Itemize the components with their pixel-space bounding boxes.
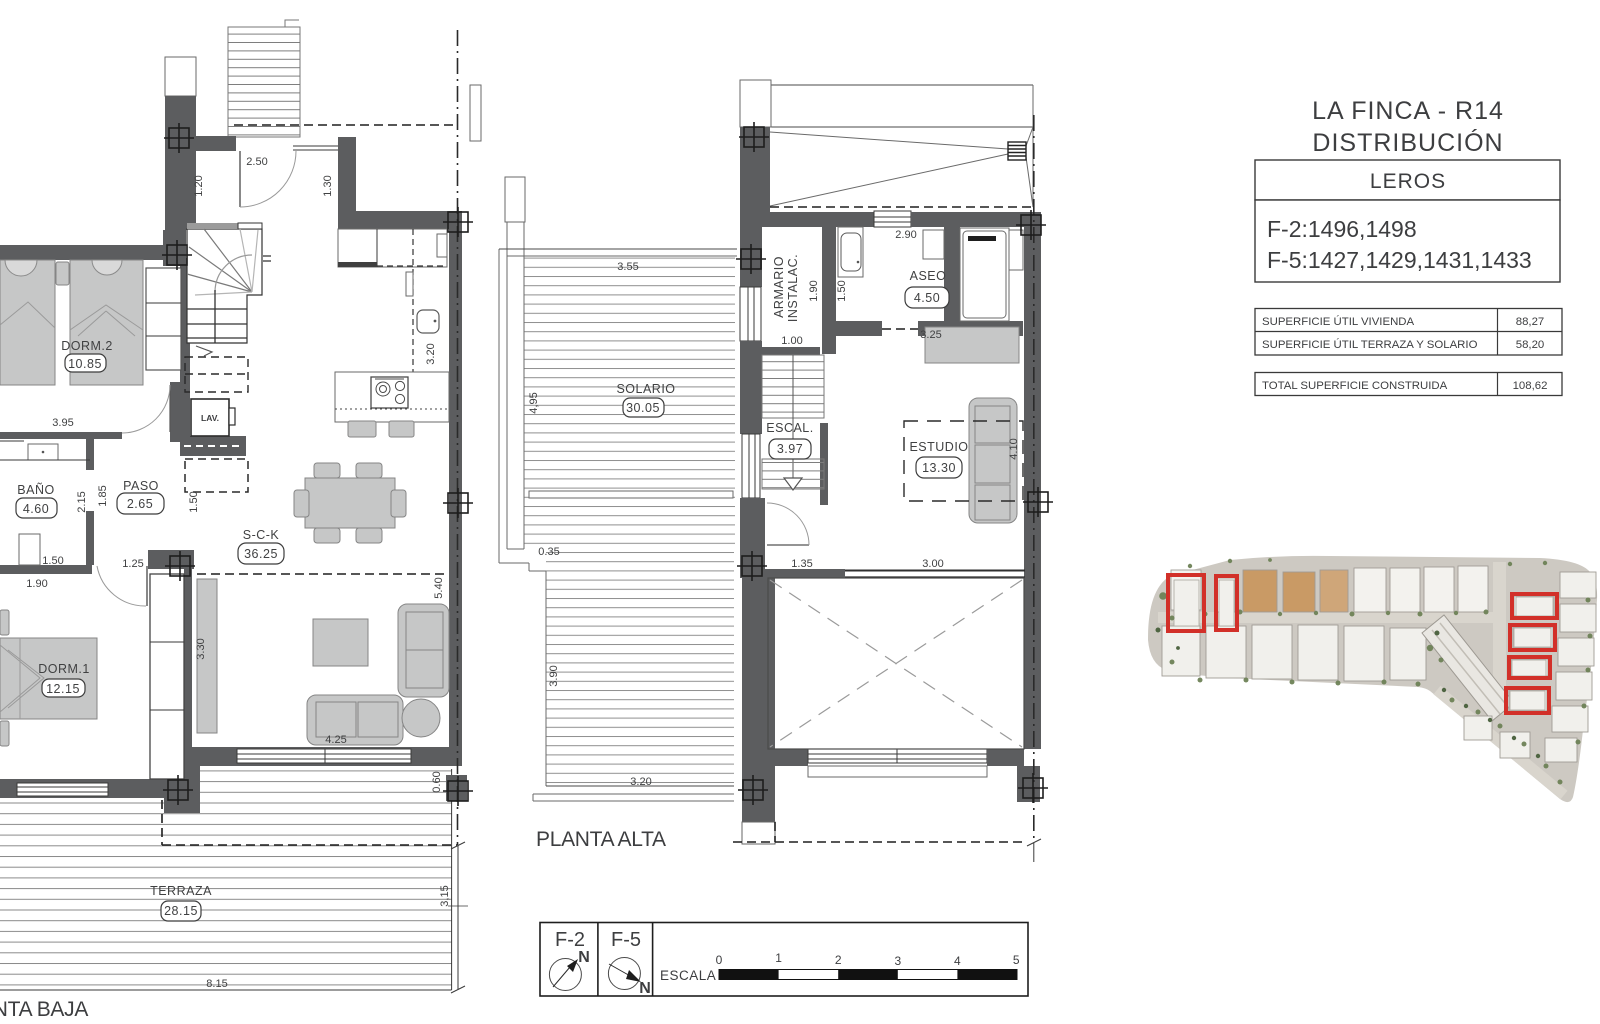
svg-text:4.10: 4.10: [1008, 438, 1020, 459]
svg-text:INSTALAC.: INSTALAC.: [786, 254, 800, 322]
svg-text:1.50: 1.50: [188, 491, 200, 512]
svg-text:F-5: F-5: [611, 929, 641, 951]
svg-text:2: 2: [835, 953, 842, 967]
svg-text:30.05: 30.05: [626, 401, 660, 415]
svg-text:N: N: [639, 980, 651, 997]
svg-text:DORM.2: DORM.2: [61, 339, 113, 353]
svg-text:PASO: PASO: [123, 479, 159, 493]
svg-text:1.00: 1.00: [781, 335, 802, 347]
svg-text:2.90: 2.90: [895, 229, 916, 241]
svg-text:3,15: 3,15: [439, 885, 451, 906]
svg-text:13.30: 13.30: [922, 461, 956, 475]
svg-text:0.60: 0.60: [431, 771, 443, 792]
svg-text:1.90: 1.90: [26, 578, 47, 590]
svg-text:SUPERFICIE ÚTIL VIVIENDA: SUPERFICIE ÚTIL VIVIENDA: [1262, 315, 1415, 328]
svg-text:PLANTA ALTA: PLANTA ALTA: [536, 828, 666, 851]
svg-text:S-C-K: S-C-K: [243, 528, 280, 542]
svg-text:ESCALA :: ESCALA :: [660, 968, 724, 983]
svg-text:4.60: 4.60: [23, 502, 49, 516]
svg-text:2.15: 2.15: [76, 491, 88, 512]
svg-text:F-5:1427,1429,1431,1433: F-5:1427,1429,1431,1433: [1267, 247, 1532, 273]
svg-text:DISTRIBUCIÓN: DISTRIBUCIÓN: [1312, 128, 1503, 157]
svg-text:3: 3: [894, 954, 901, 968]
svg-text:ESCAL.: ESCAL.: [766, 421, 813, 435]
svg-text:ESTUDIO: ESTUDIO: [909, 440, 968, 454]
svg-text:3.95: 3.95: [52, 417, 73, 429]
svg-text:3.25: 3.25: [920, 329, 941, 341]
svg-text:2.65: 2.65: [127, 497, 153, 511]
svg-text:F-2:1496,1498: F-2:1496,1498: [1267, 216, 1417, 242]
svg-text:4.25: 4.25: [325, 734, 346, 746]
svg-text:ASEO: ASEO: [910, 269, 947, 283]
svg-text:10.85: 10.85: [68, 357, 102, 371]
svg-text:2.50: 2.50: [246, 156, 267, 168]
svg-text:1.30: 1.30: [322, 175, 334, 196]
svg-text:LA FINCA - R14: LA FINCA - R14: [1312, 97, 1504, 125]
svg-text:4,95: 4,95: [528, 392, 540, 413]
svg-text:108,62: 108,62: [1513, 380, 1548, 392]
svg-text:1.50: 1.50: [42, 555, 63, 567]
svg-text:5.40: 5.40: [433, 577, 445, 598]
svg-text:12.15: 12.15: [46, 682, 80, 696]
svg-text:3.55: 3.55: [617, 261, 638, 273]
svg-text:58,20: 58,20: [1516, 339, 1545, 351]
svg-text:1: 1: [775, 951, 782, 965]
svg-text:3.20: 3.20: [630, 776, 651, 788]
svg-text:3.30: 3.30: [195, 638, 207, 659]
svg-text:LEROS: LEROS: [1370, 170, 1446, 193]
svg-text:3.97: 3.97: [777, 442, 803, 456]
svg-text:SUPERFICIE ÚTIL TERRAZA Y SOLA: SUPERFICIE ÚTIL TERRAZA Y SOLARIO: [1262, 338, 1478, 351]
svg-text:PLANTA BAJA: PLANTA BAJA: [0, 998, 88, 1021]
svg-text:36.25: 36.25: [244, 547, 278, 561]
svg-text:1.20: 1.20: [193, 175, 205, 196]
svg-text:3.90: 3.90: [548, 665, 560, 686]
svg-text:TERRAZA: TERRAZA: [150, 884, 212, 898]
svg-text:TOTAL SUPERFICIE CONSTRUIDA: TOTAL SUPERFICIE CONSTRUIDA: [1262, 380, 1448, 392]
svg-text:4.50: 4.50: [914, 291, 940, 305]
svg-text:88,27: 88,27: [1516, 316, 1545, 328]
svg-text:1.50: 1.50: [836, 280, 848, 301]
svg-text:1.85: 1.85: [97, 485, 109, 506]
svg-text:0: 0: [716, 953, 723, 967]
svg-text:3.20: 3.20: [425, 343, 437, 364]
svg-text:0.35: 0.35: [538, 546, 559, 558]
svg-text:ARMARIO: ARMARIO: [772, 256, 786, 318]
svg-text:4: 4: [954, 954, 961, 968]
svg-text:28.15: 28.15: [164, 904, 198, 918]
svg-text:1.35: 1.35: [791, 558, 812, 570]
svg-text:N: N: [578, 949, 590, 966]
svg-text:5: 5: [1013, 953, 1020, 967]
svg-text:DORM.1: DORM.1: [38, 662, 90, 676]
svg-text:8.15: 8.15: [206, 978, 227, 990]
svg-text:3.00: 3.00: [922, 558, 943, 570]
svg-text:SOLARIO: SOLARIO: [616, 382, 675, 396]
svg-text:1.25: 1.25: [122, 558, 143, 570]
svg-text:BAÑO: BAÑO: [17, 483, 54, 497]
svg-text:1.90: 1.90: [808, 280, 820, 301]
svg-text:F-2: F-2: [555, 929, 585, 951]
svg-text:LAV.: LAV.: [201, 413, 219, 423]
